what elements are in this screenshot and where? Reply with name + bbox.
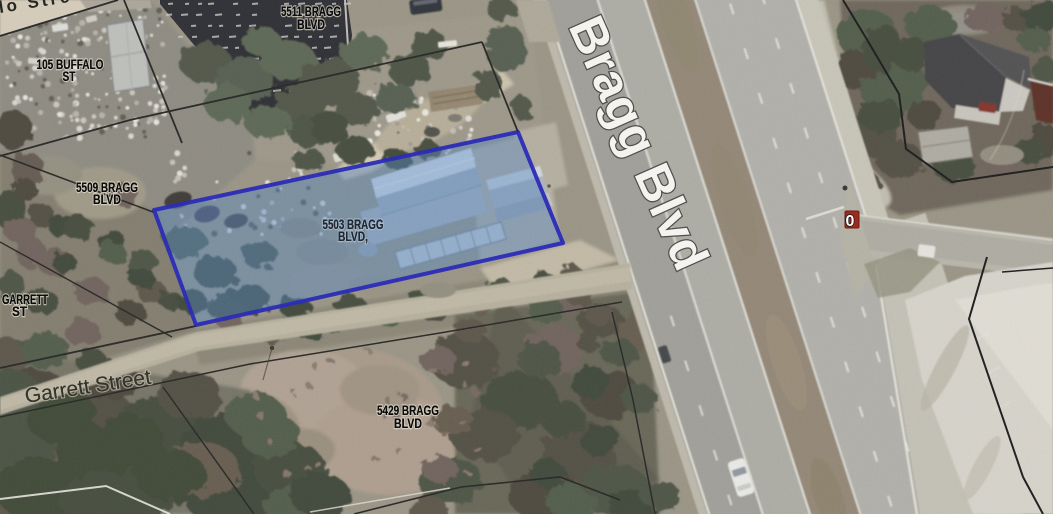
svg-text:ST: ST bbox=[12, 303, 27, 319]
svg-text:ST: ST bbox=[63, 68, 76, 84]
svg-text:BLVD,: BLVD, bbox=[338, 228, 368, 244]
svg-text:BLVD: BLVD bbox=[93, 191, 121, 207]
svg-text:0: 0 bbox=[846, 213, 855, 230]
svg-text:BLVD: BLVD bbox=[394, 415, 422, 431]
svg-text:BLVD: BLVD bbox=[297, 16, 325, 32]
